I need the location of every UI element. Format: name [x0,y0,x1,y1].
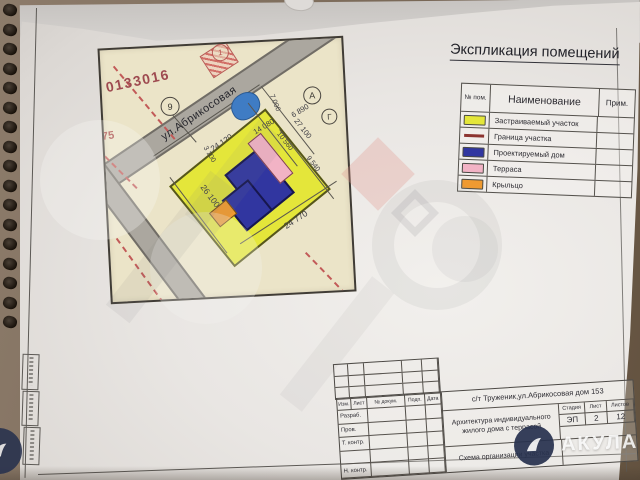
legend-note-cell [596,165,632,181]
binder-ring [2,217,18,232]
map-marker-circle-g: Г [321,108,338,125]
binder-ring [2,158,18,173]
side-stamp-text [29,430,34,460]
title-block-extension [333,357,441,400]
binder-ring [2,236,18,251]
shark-fin-icon [0,440,10,462]
cadastral-number: 0133016 [104,66,171,95]
legend-note-cell [597,117,633,133]
binder-ring [2,22,18,37]
binder-ring [2,256,18,271]
stamp-empty-cell [408,446,429,461]
stamp-col-list: Лист [351,397,368,410]
stamp-empty-cell [407,419,428,434]
binder-ring [2,197,18,212]
swatch-parcel-boundary [464,134,484,137]
side-stamp-box [21,354,39,391]
stamp-empty-cell [426,404,443,419]
binder-ring [2,2,18,17]
binder-rings [0,0,24,345]
binder-ring [2,119,18,134]
brand-name: АКУЛА [561,430,639,456]
legend-swatch-cell [458,176,488,192]
brand-logo [513,425,554,466]
swatch-porch [461,178,483,189]
binder-ring [2,295,18,310]
site-plan-map: 0133016 75 1 9 ул.Абрикосовая 24 120 14 … [97,36,356,305]
legend-swatch-cell [459,160,489,176]
stamp-col-izm: Изм. [337,398,352,411]
side-stamp-text [28,394,33,421]
swatch-terrace [462,162,484,173]
legend-note-cell [595,181,631,197]
side-stamp-box [21,391,39,427]
legend-col-note: Прим. [599,89,635,117]
legend-swatch-cell [459,144,489,160]
parcel-number-75: 75 [101,129,115,143]
legend-note-cell [597,133,633,149]
stamp-empty-cell [407,433,428,448]
side-stamp-text [28,357,33,385]
binder-ring [2,314,18,329]
stamp-empty-cell [428,445,445,460]
stamp-empty-cell [426,418,443,433]
stamp-empty-cell [427,432,444,447]
swatch-built-up-area [464,114,486,125]
binder-ring [2,275,18,290]
legend-note-cell [596,149,632,165]
shark-fin-icon [523,434,546,457]
side-stamp-box [22,427,40,466]
binder-ring [2,139,18,154]
legend-swatch-cell [460,128,490,144]
binder-ring [2,178,18,193]
page-bottom-shadow [0,466,640,480]
brand-watermark: АКУЛА [513,422,639,466]
legend-col-name: Наименование [490,85,600,116]
binder-ring [2,100,18,115]
legend-swatch-cell [460,112,490,128]
binder-ring [2,41,18,56]
legend-col-num: № пом. [461,84,491,112]
stamp-col-data: Дата [425,392,442,405]
legend-label: Крыльцо [487,177,595,196]
swatch-planned-house [462,146,484,157]
cadastral-boundary-dash [305,252,347,295]
photo-of-site-plan-document: 0133016 75 1 9 ул.Абрикосовая 24 120 14 … [0,0,640,480]
binder-ring [2,80,18,95]
legend-table: № пом. Наименование Прим. Застраиваемый … [457,83,636,199]
binder-ring [2,61,18,76]
stamp-empty-cell [406,405,427,420]
